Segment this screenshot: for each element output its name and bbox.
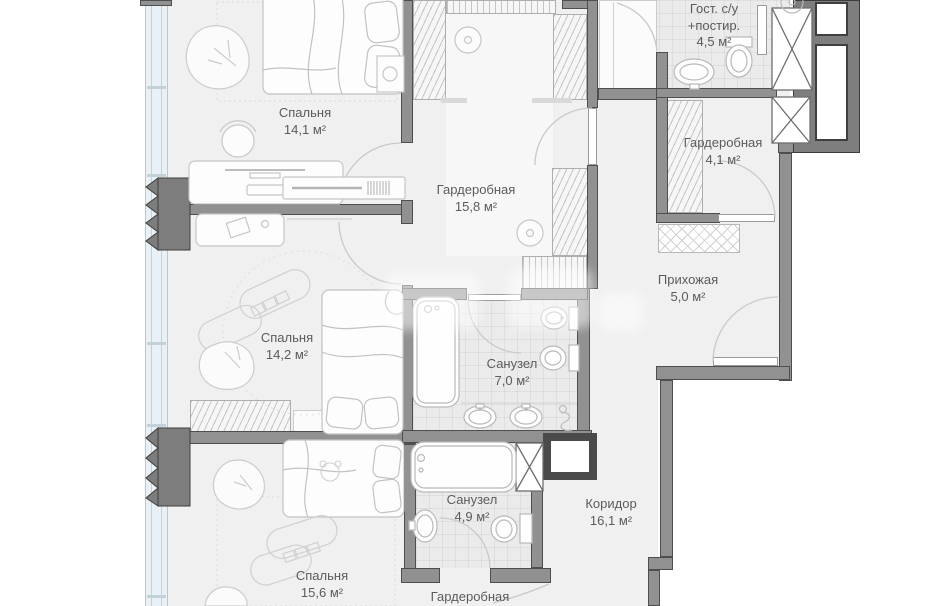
room-label-bedroom-3: Спальня 15,6 м² [296,568,348,601]
room-label-bedroom-2: Спальня 14,2 м² [261,330,313,363]
room-name: Спальня [296,568,348,585]
room-name: Прихожая [658,272,718,289]
toilet-icon [540,345,579,371]
room-area: 14,1 м² [279,122,331,139]
column [146,428,190,506]
room-label-bathroom-1: Санузел 7,0 м² [487,356,538,389]
room-area: 4,1 м² [684,152,763,169]
beanbag-icon [213,460,264,509]
room-label-wardrobe-3: Гардеробная [431,589,510,606]
room-area: 4,5 м² [669,34,759,51]
sink-icon [409,510,437,542]
room-label-corridor: Коридор 16,1 м² [585,496,636,529]
room-name: Гардеробная [684,135,763,152]
room-name: Спальня [279,105,331,122]
room-area: 15,8 м² [437,199,516,216]
towel-hook-icon [560,406,573,431]
room-area: 15,6 м² [296,585,348,602]
desk-icon [196,214,284,246]
room-label-wardrobe-main: Гардеробная 15,8 м² [437,182,516,215]
beanbag-icon [205,587,247,606]
beanbag-icon [199,342,254,390]
watermark [385,272,480,330]
room-label-bedroom-1: Спальня 14,1 м² [279,105,331,138]
room-name: Гост. с/у +постир. [669,1,759,34]
vent-shaft-icon [516,8,812,491]
room-label-bathroom-2: Санузел 4,9 м² [447,492,498,525]
sideboard-tv-icon [283,177,405,219]
room-area: 4,9 м² [447,509,498,526]
floor-plan: Спальня 14,1 м² Гардеробная 15,8 м² Гост… [0,0,926,606]
room-area: 16,1 м² [585,513,636,530]
room-name: Коридор [585,496,636,513]
room-label-entry-hall: Прихожая 5,0 м² [658,272,718,305]
nightstand-icon [377,56,404,92]
room-name: Гардеробная [431,589,510,606]
room-name: Санузел [447,492,498,509]
sink-icon [674,59,714,89]
watermark [598,292,644,332]
watermark [508,268,593,328]
room-label-guest-wc: Гост. с/у +постир. 4,5 м² [669,1,759,51]
room-name: Санузел [487,356,538,373]
room-name: Спальня [261,330,313,347]
desk-chair-icon [220,121,256,157]
room-area: 7,0 м² [487,373,538,390]
plant-icon [186,26,249,89]
bathtub-icon [411,442,516,492]
room-label-wardrobe-2: Гардеробная 4,1 м² [684,135,763,168]
room-area: 5,0 м² [658,289,718,306]
bed-icon [283,440,404,517]
room-area: 14,2 м² [261,347,313,364]
room-name: Гардеробная [437,182,516,199]
column [146,178,190,250]
